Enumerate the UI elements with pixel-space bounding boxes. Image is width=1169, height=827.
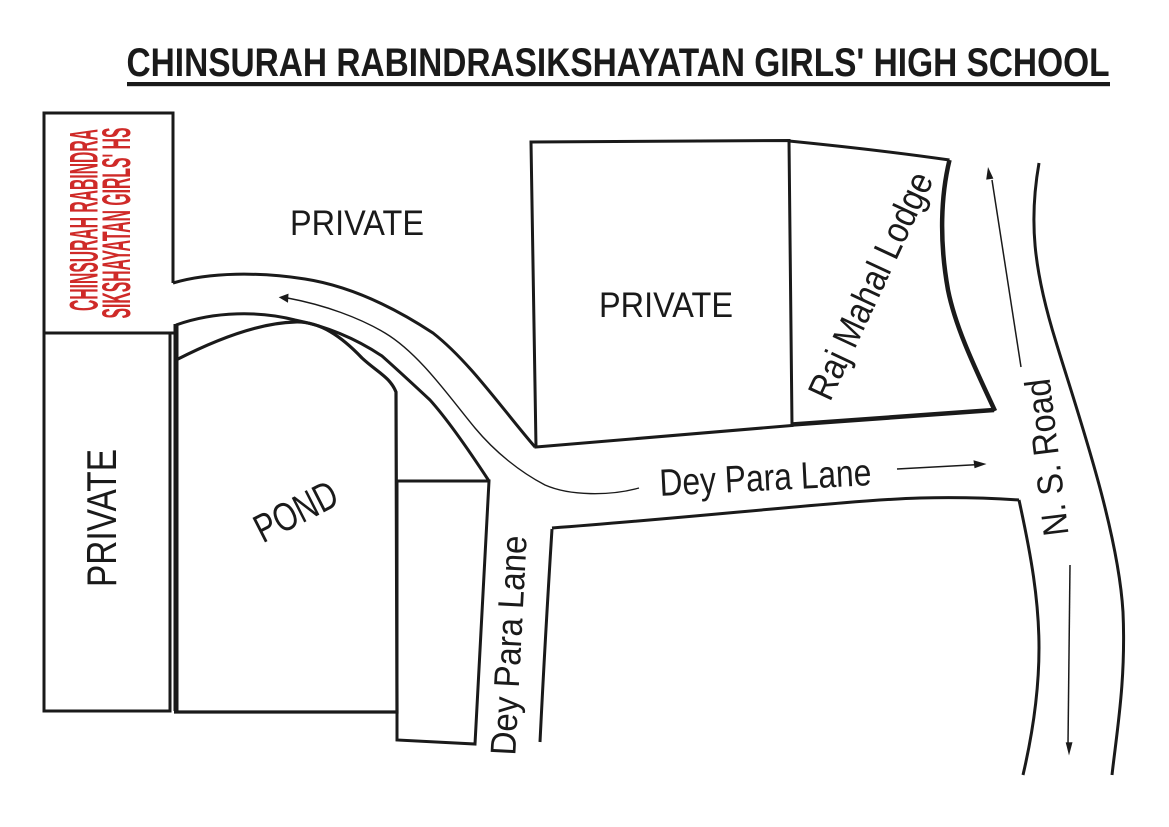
svg-text:PRIVATE: PRIVATE	[78, 449, 125, 587]
svg-text:PRIVATE: PRIVATE	[290, 203, 424, 243]
svg-text:CHINSURAH RABINDRASIKSHAYATAN: CHINSURAH RABINDRASIKSHAYATAN GIRLS' HIG…	[127, 41, 1110, 85]
svg-text:SIKSHAYATAN GIRLS' HS: SIKSHAYATAN GIRLS' HS	[95, 128, 139, 319]
svg-text:PRIVATE: PRIVATE	[599, 285, 733, 325]
